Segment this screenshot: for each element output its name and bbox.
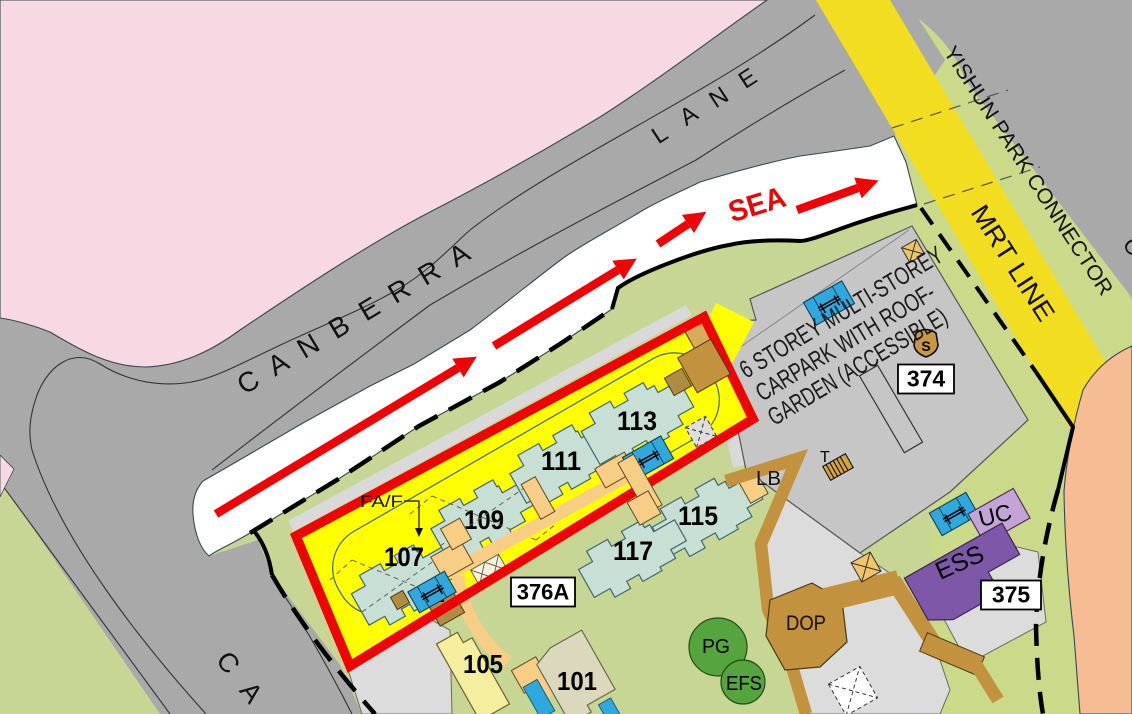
svg-text:109: 109: [464, 505, 504, 535]
svg-text:101: 101: [557, 666, 597, 696]
svg-text:DOP: DOP: [786, 612, 826, 635]
svg-text:105: 105: [463, 649, 503, 679]
svg-text:FA/F: FA/F: [360, 492, 403, 511]
svg-text:EFS: EFS: [726, 673, 762, 695]
svg-text:374: 374: [907, 366, 946, 392]
svg-text:107: 107: [384, 542, 424, 572]
svg-text:375: 375: [992, 582, 1031, 608]
svg-text:111: 111: [541, 446, 581, 476]
svg-text:PG: PG: [702, 636, 730, 658]
svg-text:117: 117: [613, 536, 653, 566]
svg-text:113: 113: [617, 406, 657, 436]
svg-text:T: T: [820, 449, 830, 466]
svg-text:376A: 376A: [517, 579, 570, 604]
svg-text:115: 115: [678, 501, 718, 531]
svg-text:LB: LB: [756, 468, 781, 490]
